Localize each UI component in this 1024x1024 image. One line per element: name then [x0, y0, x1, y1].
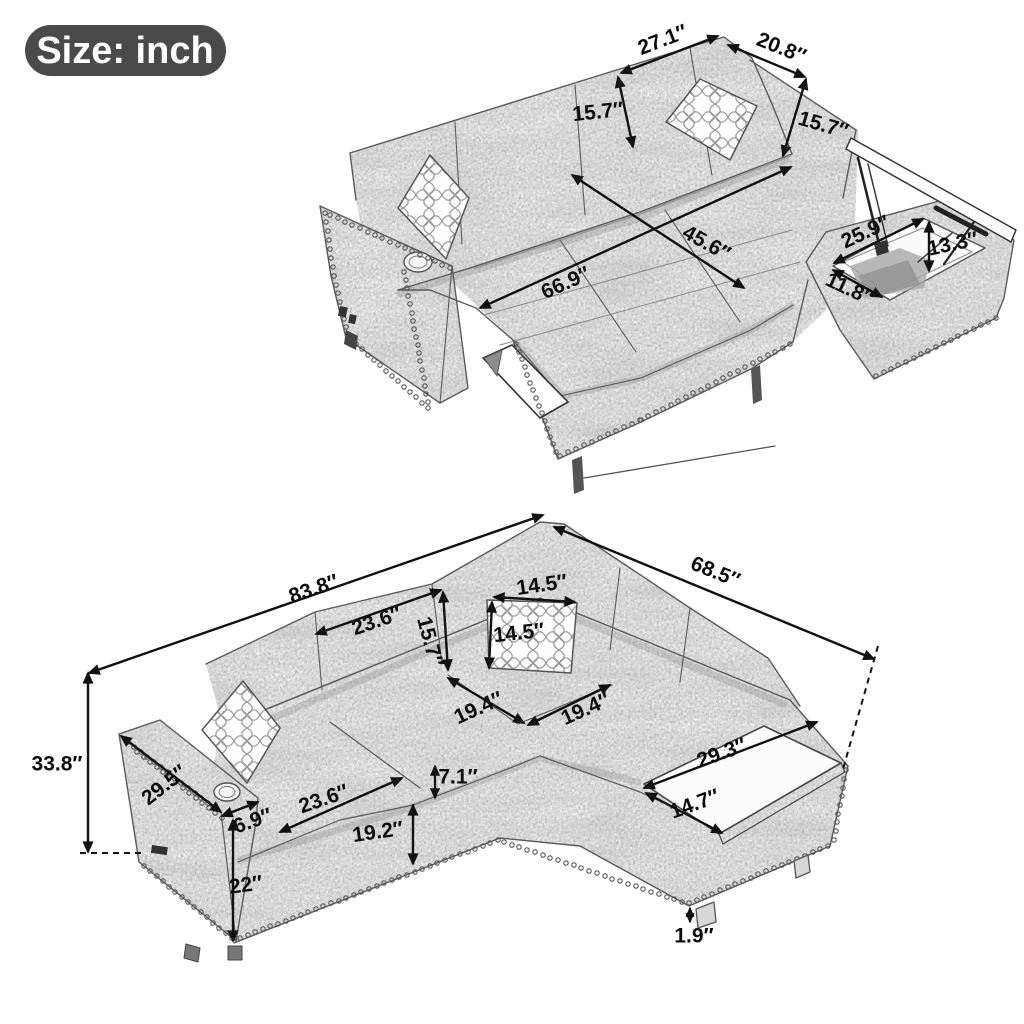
svg-text:83.8″: 83.8″	[286, 570, 342, 608]
svg-text:33.8″: 33.8″	[32, 753, 83, 776]
svg-text:1.9″: 1.9″	[674, 925, 713, 948]
svg-text:20.8″: 20.8″	[753, 28, 809, 68]
svg-text:7.1″: 7.1″	[438, 766, 477, 789]
svg-text:Size: inch: Size: inch	[36, 30, 213, 72]
svg-text:22″: 22″	[228, 871, 264, 898]
